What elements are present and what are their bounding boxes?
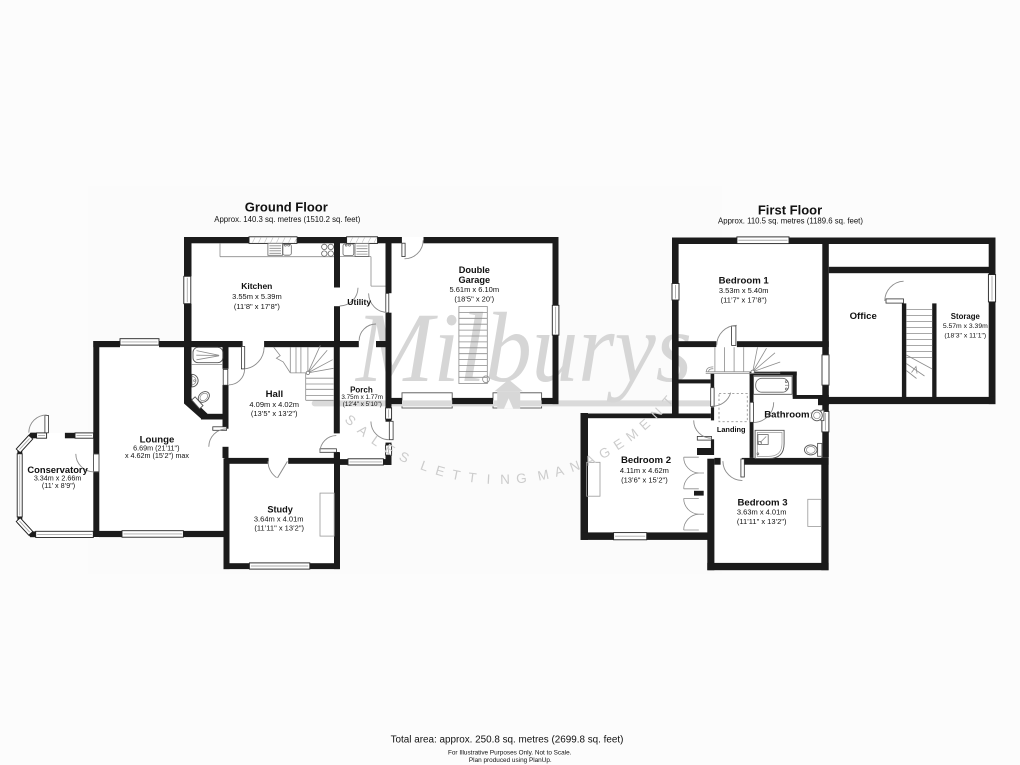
svg-text:Utility: Utility xyxy=(347,297,371,307)
svg-text:(11’11" x 13’2"): (11’11" x 13’2") xyxy=(254,524,304,533)
svg-text:3.64m x 4.01m: 3.64m x 4.01m xyxy=(254,515,304,524)
svg-text:Kitchen: Kitchen xyxy=(241,281,272,291)
svg-text:4.09m x 4.02m: 4.09m x 4.02m xyxy=(249,400,299,409)
svg-text:(11’ x 8’9"): (11’ x 8’9") xyxy=(42,481,75,490)
svg-text:For Illustrative Purposes Only: For Illustrative Purposes Only. Not to S… xyxy=(448,749,572,756)
svg-text:Ground Floor: Ground Floor xyxy=(245,200,328,215)
svg-text:3.55m x 5.39m: 3.55m x 5.39m xyxy=(232,292,282,301)
svg-text:Bathroom: Bathroom xyxy=(764,410,809,421)
svg-text:(11’8" x 17’8"): (11’8" x 17’8") xyxy=(234,302,281,311)
svg-text:3.63m x 4.01m: 3.63m x 4.01m xyxy=(737,508,787,517)
svg-text:Double: Double xyxy=(459,265,490,275)
svg-text:(18’5" x 20’): (18’5" x 20’) xyxy=(454,294,494,303)
svg-text:First Floor: First Floor xyxy=(758,203,822,218)
svg-text:(12’4" x 5’10"): (12’4" x 5’10") xyxy=(343,401,382,408)
svg-text:Approx. 110.5 sq. metres (1189: Approx. 110.5 sq. metres (1189.6 sq. fee… xyxy=(718,216,863,225)
svg-text:Plan produced using PlanUp.: Plan produced using PlanUp. xyxy=(469,757,552,764)
svg-text:(13’5" x 13’2"): (13’5" x 13’2") xyxy=(251,409,298,418)
svg-text:(18’3" x 11’1"): (18’3" x 11’1") xyxy=(944,332,986,339)
svg-text:Storage: Storage xyxy=(951,312,981,321)
svg-text:Approx. 140.3 sq. metres (1510: Approx. 140.3 sq. metres (1510.2 sq. fee… xyxy=(214,215,360,224)
svg-text:Porch: Porch xyxy=(350,385,373,394)
svg-text:Landing: Landing xyxy=(717,425,746,434)
svg-text:(11’11" x 13’2"): (11’11" x 13’2") xyxy=(737,517,787,526)
svg-text:I: I xyxy=(486,472,491,487)
svg-text:Bedroom 1: Bedroom 1 xyxy=(719,276,770,287)
svg-text:3.53m x 5.40m: 3.53m x 5.40m xyxy=(719,286,769,295)
svg-text:Milburys: Milburys xyxy=(354,292,692,403)
svg-text:(11’7" x 17’8"): (11’7" x 17’8") xyxy=(721,296,768,305)
svg-text:x 4.62m (15’2") max: x 4.62m (15’2") max xyxy=(125,451,189,460)
svg-text:Bedroom 2: Bedroom 2 xyxy=(621,455,671,466)
svg-text:Office: Office xyxy=(850,311,877,322)
svg-text:N: N xyxy=(500,472,510,487)
svg-text:5.61m x 6.10m: 5.61m x 6.10m xyxy=(449,285,499,294)
svg-text:4.11m x 4.62m: 4.11m x 4.62m xyxy=(620,466,669,475)
svg-text:Study: Study xyxy=(267,504,293,514)
svg-text:G: G xyxy=(515,470,527,486)
svg-text:Hall: Hall xyxy=(266,389,284,400)
svg-text:Garage: Garage xyxy=(458,275,490,285)
svg-text:5.57m x 3.39m: 5.57m x 3.39m xyxy=(943,323,988,330)
svg-text:(13’6" x 15’2"): (13’6" x 15’2") xyxy=(621,475,668,484)
svg-text:Total area: approx. 250.8 sq.: Total area: approx. 250.8 sq. metres (26… xyxy=(391,734,624,745)
